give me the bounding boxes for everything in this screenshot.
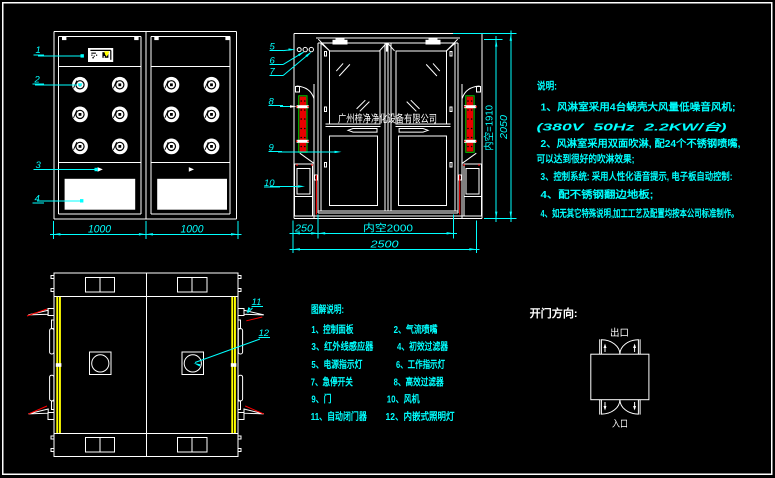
svg-text:2500: 2500 [369,240,399,251]
svg-text:7、急停开关: 7、急停开关 [311,376,353,389]
svg-text:1、控制面板: 1、控制面板 [311,323,354,336]
svg-text:1、风淋室采用4台蜗壳大风量低噪音风机;: 1、风淋室采用4台蜗壳大风量低噪音风机; [541,101,736,114]
svg-text:(380V 50Hz 2.2KW/台): (380V 50Hz 2.2KW/台) [537,122,728,134]
svg-text:说明:: 说明: [537,80,557,93]
svg-text:广州梓净净化设备有限公司: 广州梓净净化设备有限公司 [338,112,437,125]
svg-text:9、门: 9、门 [311,393,331,406]
svg-text:3、控制系统: 采用人性化语音提示, 电子板自动控制:: 3、控制系统: 采用人性化语音提示, 电子板自动控制: [541,170,733,183]
svg-text:内空2000: 内空2000 [363,222,414,235]
svg-text:250: 250 [294,224,314,235]
svg-text:11、自动闭门器: 11、自动闭门器 [311,410,368,423]
svg-text:1000: 1000 [181,224,205,236]
svg-text:4、如无其它特殊说明,加工工艺及配置均按本公司标准制作。: 4、如无其它特殊说明,加工工艺及配置均按本公司标准制作。 [541,207,739,220]
svg-text:开门方向:: 开门方向: [530,306,578,320]
svg-text:10、风机: 10、风机 [387,393,420,406]
svg-text:图解说明:: 图解说明: [311,303,344,316]
svg-text:2050: 2050 [499,115,510,141]
svg-text:8、高效过滤器: 8、高效过滤器 [394,376,445,389]
svg-text:内空=1910: 内空=1910 [483,105,496,151]
svg-text:1000: 1000 [88,224,112,236]
svg-text:4、初效过滤器: 4、初效过滤器 [397,340,449,353]
svg-text:2、气流喷嘴: 2、气流喷嘴 [394,323,438,336]
svg-text:可以达到很好的吹淋效果;: 可以达到很好的吹淋效果; [537,153,635,166]
svg-text:3、红外线感应器: 3、红外线感应器 [311,340,374,353]
svg-text:2、风淋室采用双面吹淋, 配24个不锈钢喷嘴,: 2、风淋室采用双面吹淋, 配24个不锈钢喷嘴, [541,137,741,150]
svg-text:入口: 入口 [612,419,628,430]
svg-text:出口: 出口 [610,327,629,339]
svg-text:4、配不锈钢翻边地板;: 4、配不锈钢翻边地板; [541,188,654,201]
svg-text:12、内嵌式照明灯: 12、内嵌式照明灯 [386,410,455,423]
svg-text:5、电源指示灯: 5、电源指示灯 [311,358,362,371]
svg-text:1: 1 [36,45,41,56]
svg-text:6、工作指示灯: 6、工作指示灯 [396,358,445,371]
